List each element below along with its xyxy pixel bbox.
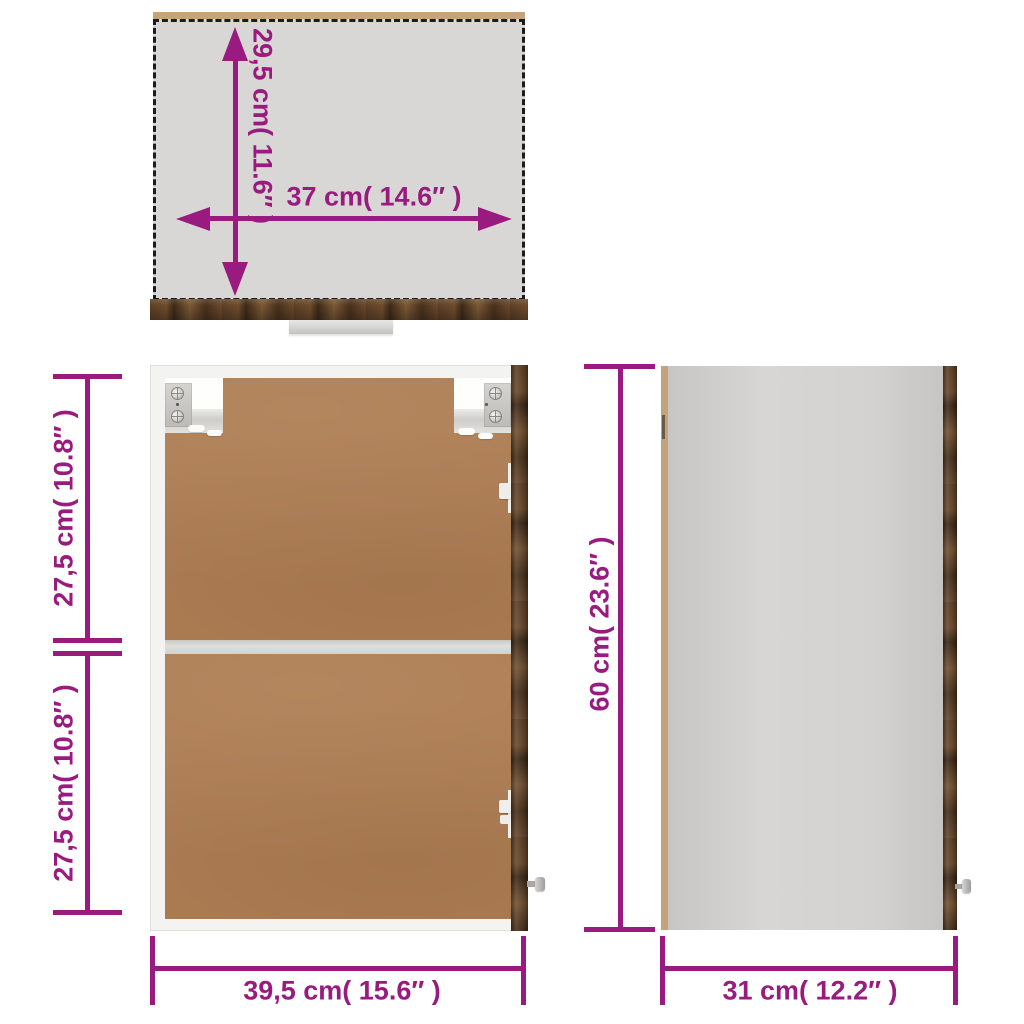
side-door-edge-strip bbox=[943, 366, 957, 930]
bracket-screw bbox=[171, 387, 184, 400]
front-upper-height-dimension-label: 27,5 cm( 10.8″ ) bbox=[51, 409, 78, 607]
side-depth-dimension-label: 31 cm( 12.2″ ) bbox=[722, 978, 897, 1005]
side-panel-front-edge bbox=[661, 366, 668, 930]
front-width-dimension-label: 39,5 cm( 15.6″ ) bbox=[243, 978, 441, 1005]
side-panel bbox=[668, 366, 943, 930]
dimension-diagram: 29,5 cm( 11.6″ ) 37 cm( 14.6″ ) bbox=[0, 0, 1024, 1024]
top-depth-dimension-label: 29,5 cm( 11.6″ ) bbox=[249, 28, 276, 224]
top-width-dimension-label: 37 cm( 14.6″ ) bbox=[286, 184, 461, 211]
bracket-screw bbox=[489, 410, 502, 423]
back-panel-lower bbox=[165, 654, 511, 919]
bracket-screw bbox=[489, 387, 502, 400]
front-lower-height-dimension-label: 27,5 cm( 10.8″ ) bbox=[51, 684, 78, 882]
top-view-outline bbox=[153, 19, 525, 301]
side-height-dimension-label: 60 cm( 23.6″ ) bbox=[587, 536, 614, 711]
wall-mount-rail-tab bbox=[289, 320, 393, 334]
side-bracket-mark bbox=[662, 415, 665, 439]
middle-shelf bbox=[165, 640, 511, 654]
top-view-front-wood-edge bbox=[150, 299, 528, 320]
bracket-screw bbox=[171, 410, 184, 423]
door-edge-strip bbox=[511, 365, 528, 931]
